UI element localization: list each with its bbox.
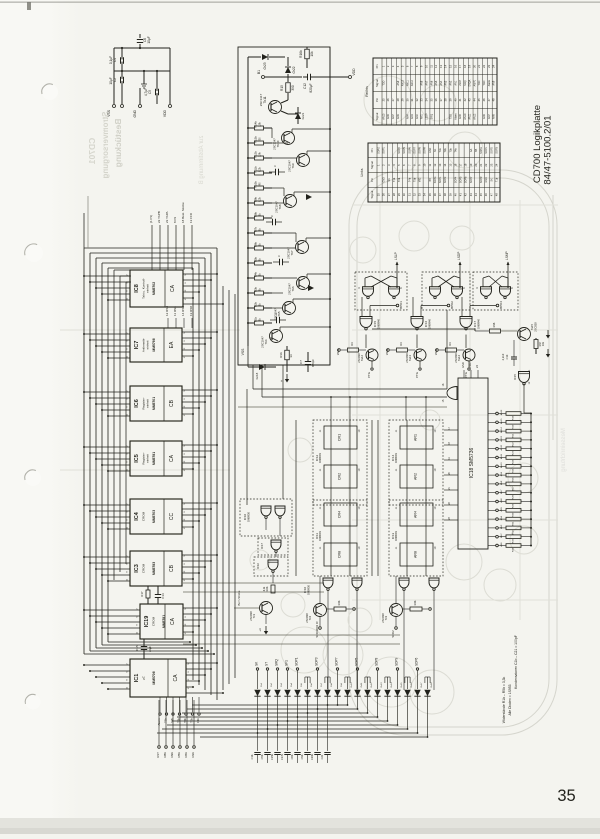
svg-text:IC18 SM5736: IC18 SM5736 (469, 447, 475, 478)
svg-text:VB2: VB2 (419, 177, 422, 182)
svg-text:SOP7: SOP7 (413, 147, 416, 154)
svg-text:13 RS8: 13 RS8 (189, 306, 193, 316)
svg-text:TDO: TDO (483, 80, 486, 85)
svg-text:Kondensatoren C1b – C21 = 100: Kondensatoren C1b – C21 = 100pF (514, 635, 518, 689)
svg-text:EA: EA (169, 341, 175, 348)
svg-text:820µF: 820µF (309, 83, 313, 92)
svg-text:2SC1047: 2SC1047 (287, 247, 291, 259)
svg-text:SOP1: SOP1 (439, 176, 442, 183)
svg-text:C15: C15 (135, 645, 139, 651)
svg-text:C: C (270, 215, 274, 217)
svg-text:R6b: R6b (254, 242, 258, 247)
svg-text:R10b: R10b (254, 181, 258, 188)
svg-text:Tb6: Tb6 (291, 286, 295, 292)
svg-text:DM8946: DM8946 (428, 319, 432, 329)
svg-text:Gr18: Gr18 (255, 372, 259, 379)
svg-text:AN4: AN4 (406, 114, 409, 119)
svg-text:SDPG: SDPG (434, 176, 437, 183)
svg-text:C5b: C5b (260, 754, 264, 759)
svg-text:R5b: R5b (177, 752, 181, 758)
svg-text:GND: GND (383, 177, 386, 183)
svg-text:R5b: R5b (254, 257, 258, 262)
svg-text:Alarm: Alarm (454, 113, 457, 119)
svg-text:Tb4: Tb4 (264, 339, 268, 345)
svg-text:2SC1047: 2SC1047 (261, 336, 265, 348)
svg-text:Tb10: Tb10 (276, 140, 280, 147)
svg-text:SOP3: SOP3 (315, 657, 319, 666)
svg-text:R14b: R14b (254, 121, 258, 128)
svg-text:VDD: VDD (163, 109, 167, 117)
svg-text:MM5702: MM5702 (152, 282, 156, 295)
svg-text:VGG: VGG (385, 349, 389, 355)
svg-text:2SC1047: 2SC1047 (288, 160, 292, 172)
svg-text:SDP8: SDP8 (375, 657, 379, 666)
svg-text:IC4: IC4 (134, 511, 140, 521)
svg-text:IC5: IC5 (134, 454, 140, 463)
svg-text:T4b: T4b (408, 177, 411, 182)
svg-text:C14: C14 (161, 593, 165, 599)
svg-text:Alle Dioden = 1S953: Alle Dioden = 1S953 (508, 684, 512, 715)
svg-text:VDD: VDD (468, 362, 472, 368)
svg-text:Gr11: Gr11 (360, 682, 363, 687)
svg-text:R1b: R1b (279, 352, 283, 358)
svg-text:IC17: IC17 (260, 543, 264, 549)
svg-text:C5: C5 (148, 90, 152, 94)
svg-text:Signal: Signal (375, 79, 379, 87)
svg-text:Tb7: Tb7 (290, 250, 294, 256)
svg-text:AR1: AR1 (414, 434, 418, 441)
svg-text:ERQA: ERQA (469, 79, 472, 86)
svg-text:2SC1047: 2SC1047 (275, 201, 279, 213)
svg-text:AR4: AR4 (414, 511, 418, 518)
svg-text:LSDP: LSDP (457, 252, 461, 260)
svg-text:AN6: AN6 (430, 80, 433, 85)
svg-text:TDD: TDD (478, 80, 481, 85)
svg-text:AN11: AN11 (406, 80, 409, 86)
svg-text:18 Best. Strobe: 18 Best. Strobe (181, 202, 185, 223)
svg-text:C17b: C17b (280, 753, 284, 760)
svg-text:F1b: F1b (196, 718, 200, 723)
svg-text:BPD4: BPD4 (499, 301, 503, 309)
svg-text:C20b: C20b (310, 753, 314, 760)
svg-text:DM8093: DM8093 (394, 453, 398, 463)
svg-text:Gr15: Gr15 (400, 682, 403, 688)
svg-text:BPD2: BPD2 (450, 301, 454, 309)
svg-text:AN6: AN6 (493, 114, 496, 119)
svg-text:AN11: AN11 (500, 453, 503, 459)
svg-text:AN4: AN4 (440, 80, 443, 85)
svg-text:SOP1: SOP1 (295, 657, 299, 666)
svg-text:SK: SK (434, 148, 437, 152)
svg-text:R3: R3 (350, 342, 354, 346)
svg-text:VSS: VSS (107, 109, 111, 117)
svg-text:BB: BB (475, 148, 478, 152)
svg-text:IC10: IC10 (243, 514, 247, 521)
svg-text:R9b: R9b (254, 197, 258, 202)
svg-text:C: C (277, 255, 281, 257)
svg-text:Gr23: Gr23 (263, 62, 267, 69)
svg-text:SOP6: SOP6 (408, 147, 411, 154)
svg-text:14 RS5: 14 RS5 (181, 306, 185, 316)
svg-text:PTG: PTG (367, 372, 371, 378)
svg-text:C13: C13 (505, 354, 509, 359)
svg-text:DM8936: DM8936 (247, 512, 251, 522)
svg-text:330: 330 (259, 137, 262, 142)
svg-text:22 TAPB: 22 TAPB (157, 211, 161, 223)
svg-text:Links: Links (360, 168, 364, 176)
svg-text:MM5701: MM5701 (152, 397, 156, 410)
svg-text:C21: C21 (320, 754, 324, 759)
svg-text:R6b: R6b (184, 752, 188, 758)
svg-text:AN13: AN13 (500, 435, 503, 441)
svg-text:AN10: AN10 (500, 462, 503, 468)
svg-text:AN9: AN9 (397, 80, 400, 85)
svg-text:CROM: CROM (152, 616, 156, 626)
svg-text:SOP6: SOP6 (465, 176, 468, 183)
svg-text:AN2: AN2 (416, 114, 419, 119)
svg-text:C7: C7 (299, 360, 303, 364)
svg-text:(1 P1): (1 P1) (149, 215, 153, 223)
svg-text:Signal: Signal (370, 161, 374, 169)
svg-text:AN9: AN9 (493, 80, 496, 85)
svg-text:Pin: Pin (375, 97, 379, 101)
svg-text:C9b: C9b (300, 754, 304, 759)
svg-text:einheit: einheit (146, 399, 150, 408)
svg-text:SF1: SF1 (285, 660, 289, 666)
svg-text:2SC828: 2SC828 (381, 613, 385, 623)
svg-text:4,7µF: 4,7µF (144, 88, 148, 96)
svg-text:LSDP: LSDP (426, 113, 429, 120)
svg-text:AN3: AN3 (445, 80, 448, 85)
svg-text:820pF: 820pF (311, 359, 315, 367)
svg-text:AN1: AN1 (454, 80, 457, 85)
svg-text:T5b: T5b (413, 177, 416, 182)
svg-text:IC1: IC1 (134, 674, 140, 683)
svg-text:AN9: AN9 (459, 114, 462, 119)
svg-text:Gr21: Gr21 (301, 112, 305, 119)
svg-text:13 FFD: 13 FFD (189, 212, 193, 223)
svg-text:R8b: R8b (163, 752, 167, 758)
svg-text:2SC828: 2SC828 (405, 353, 409, 363)
svg-text:33: 33 (289, 354, 293, 358)
svg-text:CD701: CD701 (87, 138, 97, 165)
svg-text:einheit: einheit (146, 340, 150, 349)
svg-text:T2b: T2b (398, 177, 401, 182)
svg-text:DM8093: DM8093 (318, 453, 322, 463)
svg-text:DM8936: DM8936 (307, 585, 311, 595)
svg-text:AR2: AR2 (414, 473, 418, 480)
svg-text:SDP6: SDP6 (415, 657, 419, 666)
svg-text:AN7: AN7 (426, 80, 429, 85)
svg-text:R16b: R16b (299, 50, 303, 58)
svg-text:Alarm: Alarm (488, 80, 491, 86)
svg-text:+3: +3 (258, 628, 262, 632)
svg-text:R1b: R1b (254, 317, 258, 322)
svg-text:SRQ: SRQ (430, 114, 433, 119)
svg-text:Gr17: Gr17 (420, 682, 423, 688)
svg-text:AN11: AN11 (469, 113, 472, 119)
svg-text:C6b: C6b (290, 754, 294, 759)
svg-text:CR4: CR4 (338, 511, 342, 518)
svg-text:R1T: R1T (156, 752, 160, 758)
svg-text:GND: GND (485, 177, 488, 183)
svg-text:CA: CA (170, 617, 176, 625)
svg-text:0,1µF: 0,1µF (109, 56, 113, 64)
svg-text:SK: SK (388, 178, 391, 182)
svg-text:SFO2: SFO2 (391, 630, 395, 638)
svg-text:Born Strobe: Born Strobe (237, 590, 241, 605)
svg-text:2SC828: 2SC828 (454, 353, 458, 363)
svg-text:2SC828: 2SC828 (357, 353, 361, 363)
svg-text:AN12: AN12 (411, 79, 414, 86)
svg-text:AMP1: AMP1 (473, 79, 476, 86)
svg-text:zur Abstimmung B: zur Abstimmung B (199, 136, 205, 185)
svg-text:2SC1317: 2SC1317 (259, 93, 263, 106)
svg-text:T1b: T1b (164, 718, 168, 723)
svg-text:2,2nF: 2,2nF (501, 353, 505, 360)
svg-text:SRQ: SRQ (275, 659, 279, 666)
svg-text:2SC828: 2SC828 (249, 611, 253, 621)
svg-text:MM5706: MM5706 (152, 671, 156, 684)
svg-text:SOP5: SOP5 (460, 176, 463, 183)
svg-text:11 RS6: 11 RS6 (173, 306, 177, 316)
svg-text:AN5: AN5 (435, 80, 438, 85)
svg-text:C1b: C1b (250, 754, 254, 759)
svg-text:AN16: AN16 (500, 409, 503, 415)
svg-text:SOP4: SOP4 (398, 147, 401, 154)
svg-text:SOP9: SOP9 (480, 176, 483, 183)
svg-text:Pin: Pin (370, 148, 374, 152)
svg-text:T2b: T2b (170, 718, 174, 723)
svg-text:PTG: PTG (464, 372, 468, 378)
svg-text:Bestückung: Bestückung (113, 119, 123, 168)
svg-text:T2b: T2b (444, 148, 447, 153)
svg-text:23 TAPA: 23 TAPA (165, 211, 169, 223)
svg-text:C15b: C15b (270, 753, 274, 760)
svg-text:2SC828: 2SC828 (534, 322, 538, 332)
svg-text:SDPG: SDPG (480, 147, 483, 154)
svg-text:10µF: 10µF (147, 36, 151, 43)
svg-text:3,9k: 3,9k (259, 151, 262, 156)
svg-text:BPD1: BPD1 (399, 301, 403, 309)
svg-text:R11b: R11b (254, 166, 258, 173)
svg-text:MM5781: MM5781 (152, 452, 156, 465)
svg-text:CA: CA (169, 454, 175, 462)
svg-text:VSS: VSS (241, 348, 245, 356)
svg-text:IC6: IC6 (134, 399, 140, 408)
svg-text:AN6: AN6 (397, 114, 400, 119)
svg-text:SOP5: SOP5 (403, 147, 406, 154)
svg-text:AN7: AN7 (488, 114, 491, 119)
svg-text:SK: SK (490, 178, 493, 182)
svg-text:SOP1: SOP1 (383, 147, 386, 154)
svg-text:IC7: IC7 (134, 341, 140, 350)
svg-text:SDP5: SDP5 (355, 657, 359, 666)
svg-text:LSLP: LSLP (394, 252, 398, 260)
svg-text:SFO1: SFO1 (315, 630, 319, 638)
svg-text:IC15: IC15 (513, 374, 517, 380)
svg-text:SOP7: SOP7 (335, 657, 339, 666)
svg-text:R4b: R4b (413, 600, 417, 605)
svg-text:SOP9: SOP9 (424, 147, 427, 154)
svg-text:VGG: VGG (434, 349, 438, 355)
svg-text:AN8: AN8 (421, 80, 424, 85)
svg-text:SOP2: SOP2 (444, 176, 447, 183)
svg-text:R36: R36 (492, 322, 496, 327)
svg-text:AN1: AN1 (421, 114, 424, 119)
svg-text:390: 390 (259, 182, 262, 187)
svg-text:12 RS3: 12 RS3 (165, 306, 169, 316)
svg-text:84/47-5100.2/01: 84/47-5100.2/01 (543, 115, 554, 184)
svg-text:MM5781: MM5781 (162, 615, 166, 628)
svg-text:R4b: R4b (337, 600, 341, 605)
svg-text:Signal: Signal (370, 190, 374, 198)
svg-text:Rechts: Rechts (365, 86, 369, 97)
svg-text:TDO: TDO (449, 114, 452, 119)
svg-text:AN13: AN13 (382, 113, 385, 120)
svg-text:ST: ST (265, 662, 269, 666)
svg-text:GND: GND (461, 362, 465, 368)
svg-text:T4b: T4b (183, 718, 187, 723)
svg-text:AR8: AR8 (414, 551, 418, 558)
svg-text:CC: CC (169, 513, 175, 521)
svg-text:DM8946: DM8946 (377, 319, 381, 329)
svg-text:Signal: Signal (375, 112, 379, 120)
svg-text:TDD: TDD (382, 80, 385, 85)
svg-text:SOP2: SOP2 (490, 147, 493, 154)
svg-text:Stromversorgung: Stromversorgung (101, 111, 110, 178)
svg-text:T3b: T3b (449, 148, 452, 153)
svg-text:T1b: T1b (439, 148, 442, 153)
svg-text:2SC1047: 2SC1047 (273, 138, 277, 150)
svg-text:2SC828: 2SC828 (305, 613, 309, 623)
svg-text:Tb8: Tb8 (278, 204, 282, 210)
svg-text:AN8: AN8 (387, 114, 390, 119)
svg-text:IC17: IC17 (473, 321, 477, 328)
svg-text:GND: GND (429, 147, 432, 153)
svg-text:R3b: R3b (191, 752, 195, 758)
svg-text:IC3: IC3 (134, 564, 140, 573)
svg-text:CR8: CR8 (338, 551, 342, 558)
svg-text:R3: R3 (448, 342, 452, 346)
svg-text:T5b: T5b (190, 718, 194, 723)
svg-text:DM8093: DM8093 (394, 531, 398, 541)
svg-text:C: C (273, 165, 277, 167)
svg-text:CB: CB (169, 399, 175, 407)
svg-text:22µF: 22µF (148, 646, 152, 652)
svg-text:MM5703: MM5703 (152, 510, 156, 523)
svg-text:IC16: IC16 (256, 563, 260, 569)
svg-text:einheit: einheit (146, 284, 150, 293)
svg-text:SOP8: SOP8 (419, 147, 422, 154)
svg-text:VGG: VGG (336, 349, 340, 355)
svg-text:AN15: AN15 (500, 418, 503, 424)
svg-text:10k: 10k (310, 51, 314, 57)
svg-text:3003 Dr: 3003 Dr (315, 621, 319, 631)
svg-text:8,2k: 8,2k (263, 586, 266, 591)
svg-text:R8b: R8b (254, 212, 258, 217)
svg-text:2SC1047: 2SC1047 (288, 283, 292, 295)
svg-text:AN10: AN10 (402, 79, 405, 86)
svg-text:AN12: AN12 (500, 444, 503, 450)
svg-text:Pin: Pin (375, 64, 379, 68)
svg-text:AN14: AN14 (500, 427, 503, 433)
svg-text:B1: B1 (257, 70, 261, 74)
svg-text:IC19: IC19 (144, 616, 150, 628)
svg-text:T1b: T1b (393, 177, 396, 182)
svg-text:R9b: R9b (170, 752, 174, 758)
svg-text:Messeinrichtung: Messeinrichtung (561, 428, 567, 472)
svg-text:T4b: T4b (454, 148, 457, 153)
svg-text:AN2: AN2 (449, 80, 452, 85)
svg-text:CR1: CR1 (338, 434, 342, 441)
svg-text:SRQ: SRQ (464, 80, 467, 85)
svg-text:IC8: IC8 (134, 284, 140, 293)
svg-text:CA: CA (173, 674, 179, 682)
svg-text:SOP1: SOP1 (485, 147, 488, 154)
svg-text:VDD: VDD (352, 68, 356, 76)
svg-text:8,2k: 8,2k (259, 166, 262, 171)
svg-text:PTG: PTG (415, 372, 419, 378)
svg-text:CROM: CROM (142, 563, 146, 573)
svg-text:Tb11: Tb11 (263, 96, 267, 103)
svg-text:SDPG: SDPG (378, 147, 381, 154)
svg-text:LSDP: LSDP (459, 80, 462, 87)
svg-text:GND: GND (133, 109, 137, 117)
svg-text:SOP3: SOP3 (495, 147, 498, 154)
svg-text:CD700 Logikplatte: CD700 Logikplatte (532, 105, 543, 183)
svg-text:AN12: AN12 (473, 113, 476, 120)
svg-text:IC16: IC16 (424, 321, 428, 328)
svg-text:SOP7: SOP7 (470, 176, 473, 183)
svg-text:R13b: R13b (254, 136, 258, 143)
svg-text:Pin: Pin (370, 177, 374, 181)
svg-text:AN8: AN8 (483, 114, 486, 119)
svg-text:CROM: CROM (142, 511, 146, 521)
svg-text:DM8093: DM8093 (318, 531, 322, 541)
svg-text:AN10: AN10 (464, 113, 467, 120)
svg-text:R3b: R3b (254, 287, 258, 292)
svg-text:C: C (274, 313, 278, 315)
svg-text:R3: R3 (399, 342, 403, 346)
svg-text:8,2k: 8,2k (259, 196, 262, 201)
svg-text:10k: 10k (541, 341, 545, 346)
svg-text:MM5766: MM5766 (152, 338, 156, 351)
svg-text:C2: C2 (113, 78, 117, 82)
svg-text:CB: CB (169, 564, 175, 572)
svg-text:LSMP: LSMP (505, 251, 509, 260)
svg-text:Gr13: Gr13 (380, 682, 383, 688)
svg-text:T1b: T1b (495, 177, 498, 182)
svg-text:C12: C12 (303, 83, 307, 89)
svg-text:DM8946: DM8946 (477, 319, 481, 329)
svg-text:IC15: IC15 (373, 321, 377, 328)
svg-text:R12b: R12b (254, 151, 258, 158)
svg-text:R15: R15 (280, 85, 284, 91)
svg-text:AN3: AN3 (411, 114, 414, 119)
svg-text:R2b: R2b (254, 302, 258, 307)
svg-text:Tb9: Tb9 (291, 163, 295, 169)
svg-text:BB: BB (429, 178, 432, 182)
svg-text:C4: C4 (113, 58, 117, 62)
svg-text:35: 35 (557, 787, 575, 805)
svg-text:R17: R17 (140, 591, 144, 597)
svg-text:Ta15: Ta15 (530, 324, 534, 331)
svg-text:SOP4: SOP4 (454, 176, 457, 183)
svg-text:R4b: R4b (254, 272, 258, 277)
svg-text:AN7: AN7 (392, 114, 395, 119)
svg-text:CA: CA (170, 284, 176, 292)
